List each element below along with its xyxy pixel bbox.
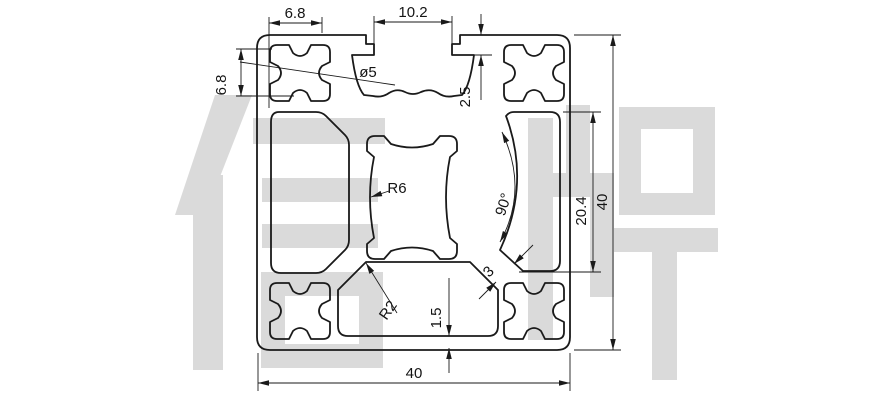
label-overall-height: 40: [594, 194, 611, 211]
watermark-stroke: [253, 118, 385, 144]
watermark-stroke: [528, 118, 553, 340]
corner-boss-top-right: [504, 45, 564, 101]
watermark-stroke: [262, 178, 378, 202]
profile-drawing: 6.8 10.2 6.8 ø5 2.5 R6 90° 20.4 40 R2 1.…: [0, 0, 880, 420]
label-center-radius: R6: [387, 180, 406, 197]
watermark-stroke: [193, 175, 223, 370]
label-boss-height: 6.8: [213, 75, 230, 96]
watermark-stroke: [612, 228, 718, 252]
cavity-center: [367, 136, 457, 259]
watermark-stroke: [262, 224, 378, 248]
label-slot-opening: 10.2: [398, 4, 427, 21]
label-bottom-wall: 1.5: [428, 308, 445, 329]
watermark-stroke: [630, 118, 704, 204]
watermark-stroke: [528, 173, 614, 197]
label-corner-hole: ø5: [359, 64, 377, 81]
drawing-canvas: 信牌: [0, 0, 880, 420]
watermark-stroke: [590, 197, 614, 297]
dimension-boss-height: [236, 49, 294, 96]
label-top-slot-offset: 6.8: [285, 5, 306, 22]
label-web-thickness: 3: [480, 263, 498, 281]
label-inner-height: 20.4: [573, 196, 590, 225]
corner-boss-top-left: [270, 45, 330, 101]
label-lip-thickness: 2.5: [457, 87, 474, 108]
dimension-groove-angle: [500, 132, 515, 242]
watermark-stroke: [652, 252, 677, 380]
label-overall-width: 40: [406, 365, 423, 382]
dimension-top-slot-offset: [269, 17, 322, 108]
watermark-stroke: [273, 284, 371, 356]
